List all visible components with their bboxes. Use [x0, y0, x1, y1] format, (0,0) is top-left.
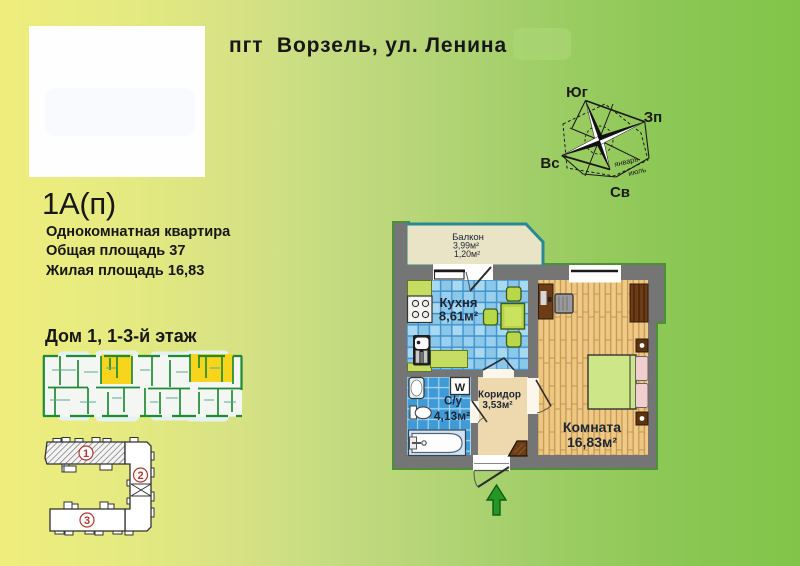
svg-text:1: 1 [83, 448, 89, 460]
svg-text:8,61м²: 8,61м² [439, 309, 479, 324]
svg-text:Комната: Комната [563, 419, 621, 435]
svg-text:Св: Св [610, 184, 630, 201]
svg-text:16,83м²: 16,83м² [567, 434, 617, 450]
svg-text:Зп: Зп [644, 109, 662, 126]
svg-text:3,53м²: 3,53м² [482, 400, 513, 411]
svg-text:Коридор: Коридор [478, 390, 521, 401]
svg-text:4,13м²: 4,13м² [434, 409, 470, 423]
svg-text:Вс: Вс [540, 155, 559, 172]
svg-text:С/у: С/у [444, 396, 463, 408]
svg-text:Юг: Юг [566, 84, 588, 101]
svg-text:1,20м²: 1,20м² [454, 249, 480, 259]
svg-text:2: 2 [137, 470, 143, 482]
svg-text:W: W [455, 382, 466, 394]
svg-text:июль: июль [627, 165, 647, 178]
svg-text:3: 3 [84, 515, 90, 527]
